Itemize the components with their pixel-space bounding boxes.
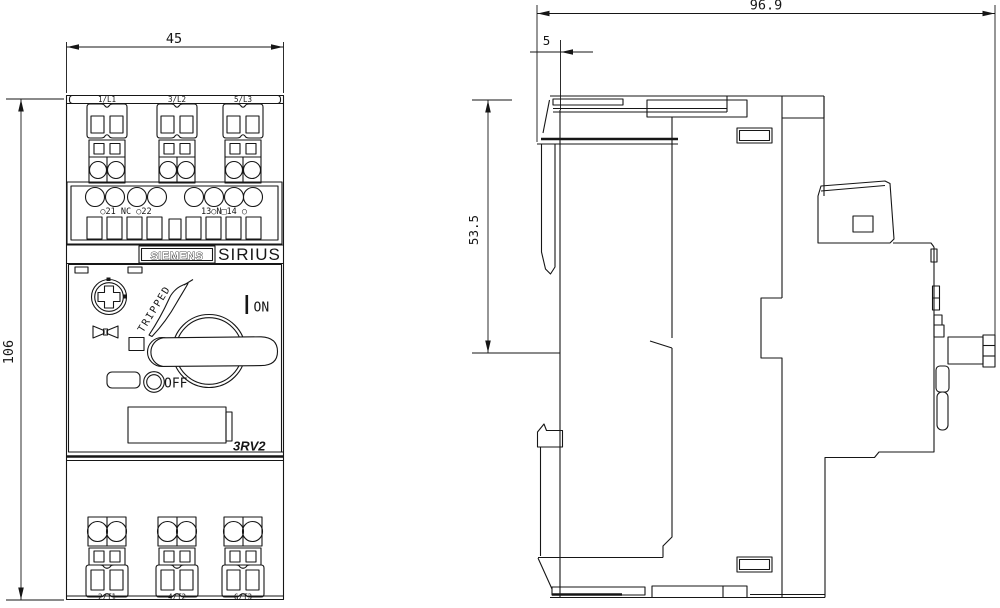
terminal-label-6t3: 6/T3 [234,593,252,602]
cross-slot-icon [98,286,120,308]
side-view [537,96,995,598]
label-plate: 3RV2 [128,407,284,454]
dim-front-width: 45 [67,31,284,93]
arrowhead-bottom [485,341,491,353]
on-marker: ON [246,295,270,316]
arrowhead-top [485,101,491,113]
aux-contact-strip: ○21 NC ○22 13○N□14 ○ [67,182,282,244]
dim-front-width-value: 45 [166,31,182,47]
rotary-knob [129,315,278,388]
front-view: 1/L1 3/L2 5/L3 ○21 NC ○22 13○N□14 ○ SIEM [67,95,284,602]
arrowhead-right [271,44,283,50]
terminal-label-5l3: 5/L3 [234,95,252,104]
arrowhead-top [18,100,24,112]
side-bottom-stack [550,586,825,598]
reset-button [107,372,140,388]
handle-left-tab [129,338,144,351]
on-label: ON [254,301,270,316]
series-label: SIRIUS [218,245,281,264]
handle-lever [151,337,278,367]
terminal-label-3l2: 3/L2 [168,95,186,104]
dim-rail-offset-value: 5 [543,33,551,48]
setting-dial [92,278,128,315]
dimension-drawing: 1/L1 3/L2 5/L3 ○21 NC ○22 13○N□14 ○ SIEM [0,0,1000,608]
arrowhead-left [561,49,573,55]
terminal-label-1l1: 1/L1 [98,95,116,104]
model-label: 3RV2 [233,439,266,454]
lockout-icon [93,326,118,338]
side-knob-profile [818,96,934,247]
off-marker: OFF [107,372,188,393]
side-front-face [825,247,995,598]
on-position-tick [246,295,249,314]
dim-side-depth-value: 96.9 [750,0,783,14]
control-face: TRIPPED ON [69,265,284,454]
aux-label-no: 13○N□14 ○ [201,207,247,217]
top-terminals-row: 1/L1 3/L2 5/L3 [87,95,263,183]
dim-upper-height-value: 53.5 [466,215,481,245]
terminal-label-4t2: 4/T2 [168,593,186,602]
tripped-label: TRIPPED [136,284,173,334]
terminal-label-2t1: 2/T1 [98,593,116,602]
drawing-svg: 1/L1 3/L2 5/L3 ○21 NC ○22 13○N□14 ○ SIEM [0,0,1000,608]
arrowhead-right [983,11,995,17]
off-label: OFF [164,377,188,392]
brand-band: SIEMENS SIRIUS [67,245,284,264]
arrowhead-left [67,44,79,50]
bottom-terminals-row: 2/T1 4/T2 6/T3 [86,517,264,602]
dim-front-height: 106 [1,99,64,600]
drive-shaft [948,335,995,367]
dim-front-height-value: 106 [1,340,17,364]
arrowhead-bottom [18,588,24,600]
dim-side-depth: 96.9 [537,0,995,340]
brand-logo: SIEMENS [150,251,203,263]
aux-label-nc: ○21 NC ○22 [100,207,151,217]
side-internal-lines [538,118,782,598]
arrowhead-left [538,11,550,17]
din-rail-clip-top [537,100,678,598]
din-rail-clip-bottom [538,424,563,589]
side-top-stack [550,96,824,118]
